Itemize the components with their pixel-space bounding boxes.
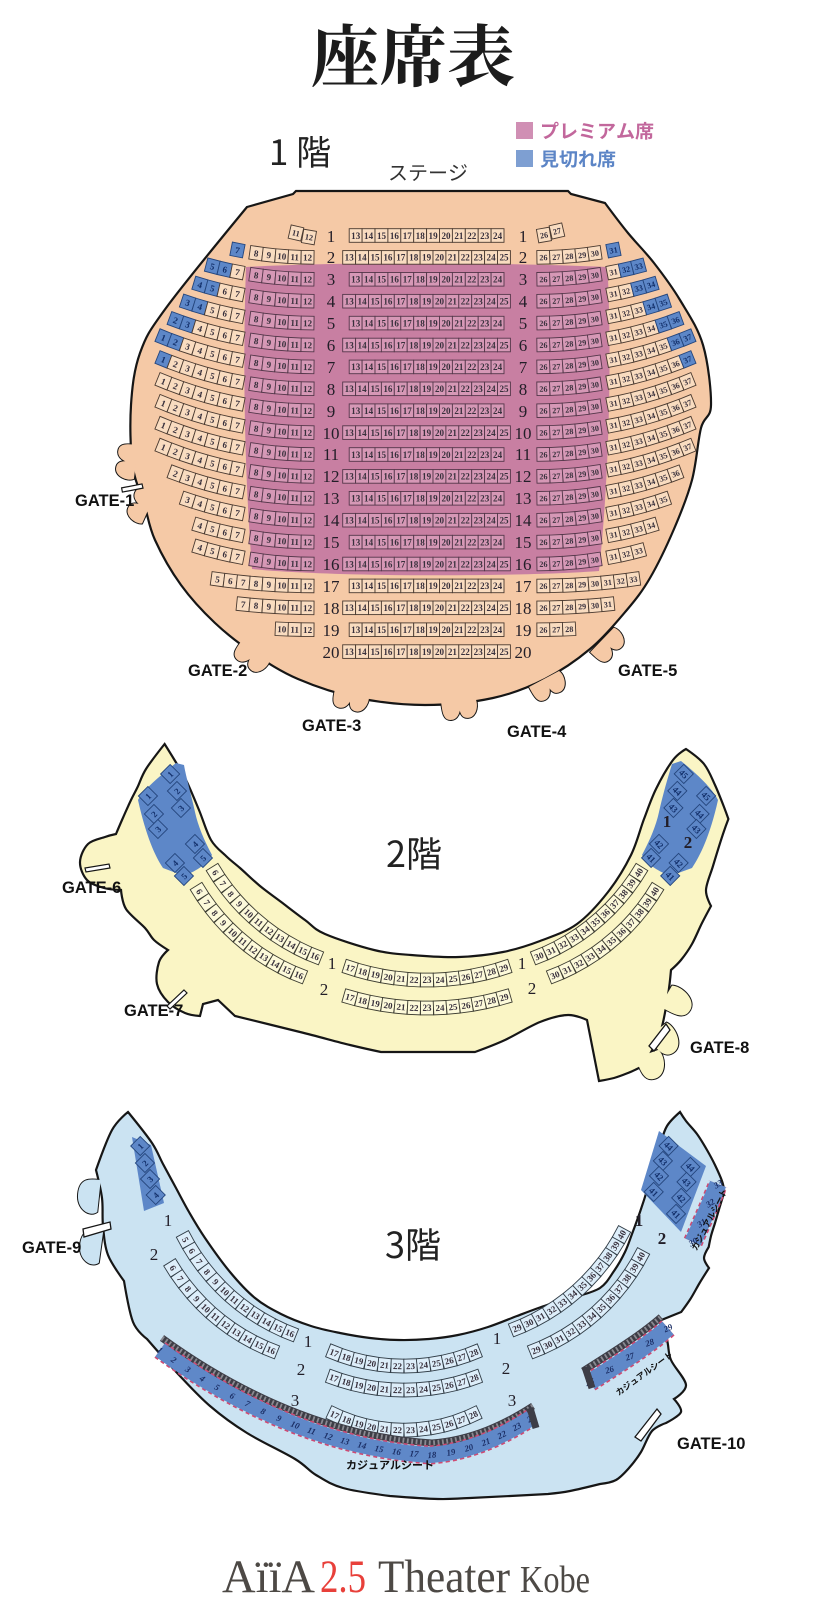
svg-text:3: 3 <box>519 270 528 289</box>
svg-text:18: 18 <box>409 516 419 526</box>
svg-text:11: 11 <box>290 581 299 591</box>
svg-text:21: 21 <box>448 340 458 350</box>
svg-text:20: 20 <box>435 340 445 350</box>
svg-text:28: 28 <box>565 252 574 262</box>
svg-text:16: 16 <box>383 647 393 657</box>
svg-text:19: 19 <box>429 275 439 285</box>
svg-text:31: 31 <box>609 399 619 409</box>
svg-text:17: 17 <box>403 362 413 372</box>
svg-text:17: 17 <box>403 406 413 416</box>
svg-text:17: 17 <box>396 340 406 350</box>
svg-text:18: 18 <box>409 384 419 394</box>
svg-text:33: 33 <box>629 575 638 585</box>
svg-text:11: 11 <box>290 318 300 328</box>
svg-text:13: 13 <box>345 297 355 307</box>
svg-text:19: 19 <box>429 450 439 460</box>
svg-text:13: 13 <box>351 625 361 635</box>
svg-text:3: 3 <box>508 1391 517 1410</box>
svg-text:16: 16 <box>383 472 393 482</box>
svg-text:17: 17 <box>403 231 413 241</box>
svg-text:31: 31 <box>609 267 619 277</box>
svg-text:13: 13 <box>345 253 355 263</box>
svg-text:21: 21 <box>448 472 458 482</box>
svg-text:13: 13 <box>515 489 532 508</box>
svg-text:11: 11 <box>290 340 300 350</box>
svg-text:1: 1 <box>518 954 527 973</box>
svg-text:28: 28 <box>565 296 574 306</box>
svg-text:11: 11 <box>290 515 300 525</box>
svg-text:26: 26 <box>539 341 547 350</box>
svg-text:16: 16 <box>390 581 400 591</box>
svg-text:16: 16 <box>390 494 400 504</box>
svg-text:23: 23 <box>480 362 490 372</box>
svg-text:26: 26 <box>539 407 547 416</box>
svg-text:12: 12 <box>515 467 532 486</box>
svg-text:4: 4 <box>327 292 336 311</box>
svg-text:24: 24 <box>493 231 503 241</box>
svg-text:15: 15 <box>370 428 380 438</box>
svg-text:15: 15 <box>377 581 387 591</box>
svg-text:9: 9 <box>327 402 336 421</box>
svg-text:15: 15 <box>323 533 340 552</box>
svg-text:23: 23 <box>480 318 490 328</box>
svg-text:2.5: 2.5 <box>320 1551 366 1599</box>
svg-text:29: 29 <box>578 404 587 414</box>
svg-text:22: 22 <box>393 1385 403 1395</box>
svg-text:GATE-10: GATE-10 <box>677 1435 745 1453</box>
svg-text:11: 11 <box>290 405 300 415</box>
svg-text:20: 20 <box>441 494 451 504</box>
svg-text:29: 29 <box>578 469 587 479</box>
svg-text:27: 27 <box>552 318 561 327</box>
svg-text:28: 28 <box>565 449 574 459</box>
svg-text:2: 2 <box>297 1360 306 1379</box>
svg-text:31: 31 <box>603 578 612 588</box>
svg-text:23: 23 <box>480 450 490 460</box>
svg-text:21: 21 <box>396 973 406 984</box>
svg-text:22: 22 <box>467 581 477 591</box>
svg-text:12: 12 <box>303 318 313 328</box>
svg-text:26: 26 <box>539 472 547 481</box>
svg-text:22: 22 <box>461 559 471 569</box>
svg-text:18: 18 <box>409 297 419 307</box>
svg-text:18: 18 <box>409 559 419 569</box>
svg-text:18: 18 <box>416 362 426 372</box>
svg-text:26: 26 <box>539 275 547 284</box>
svg-text:22: 22 <box>461 516 471 526</box>
svg-text:15: 15 <box>377 450 387 460</box>
svg-text:27: 27 <box>552 297 561 306</box>
svg-text:31: 31 <box>609 486 619 496</box>
svg-text:18: 18 <box>416 450 426 460</box>
svg-text:17: 17 <box>323 577 341 596</box>
svg-text:24: 24 <box>419 1384 429 1395</box>
svg-text:22: 22 <box>461 472 471 482</box>
svg-text:6: 6 <box>327 336 336 355</box>
svg-text:GATE-3: GATE-3 <box>302 717 361 735</box>
svg-text:20: 20 <box>441 537 451 547</box>
svg-text:14: 14 <box>364 494 374 504</box>
svg-text:19: 19 <box>515 621 532 640</box>
svg-text:24: 24 <box>435 1003 445 1013</box>
svg-text:21: 21 <box>379 1360 389 1371</box>
svg-text:19: 19 <box>422 253 432 263</box>
svg-text:10: 10 <box>277 404 287 415</box>
svg-text:18: 18 <box>323 599 340 618</box>
svg-text:11: 11 <box>290 471 300 481</box>
svg-text:29: 29 <box>578 360 587 370</box>
svg-text:22: 22 <box>461 384 471 394</box>
svg-text:11: 11 <box>290 559 300 569</box>
svg-text:2: 2 <box>502 1359 511 1378</box>
svg-text:10: 10 <box>277 492 287 503</box>
svg-text:25: 25 <box>499 559 509 569</box>
svg-text:24: 24 <box>487 253 497 263</box>
svg-text:25: 25 <box>499 253 509 263</box>
svg-text:30: 30 <box>590 314 599 324</box>
svg-text:10: 10 <box>277 624 287 634</box>
svg-text:27: 27 <box>552 384 561 393</box>
svg-text:24: 24 <box>493 494 503 504</box>
svg-text:12: 12 <box>303 340 313 350</box>
svg-text:12: 12 <box>303 493 313 503</box>
svg-text:14: 14 <box>358 647 368 657</box>
svg-text:13: 13 <box>345 603 355 613</box>
svg-text:24: 24 <box>493 362 503 372</box>
svg-text:27: 27 <box>552 253 561 262</box>
svg-text:19: 19 <box>429 625 439 635</box>
svg-text:11: 11 <box>323 445 339 464</box>
svg-text:28: 28 <box>565 339 574 349</box>
svg-text:Kobe: Kobe <box>520 1559 590 1599</box>
svg-text:20: 20 <box>441 318 451 328</box>
svg-text:17: 17 <box>403 450 413 460</box>
svg-text:10: 10 <box>277 251 287 262</box>
svg-text:20: 20 <box>435 472 445 482</box>
svg-text:23: 23 <box>474 559 484 569</box>
svg-text:10: 10 <box>277 339 287 350</box>
svg-text:16: 16 <box>383 559 393 569</box>
svg-text:12: 12 <box>303 274 313 284</box>
svg-text:GATE-9: GATE-9 <box>22 1239 81 1257</box>
svg-text:29: 29 <box>578 535 587 545</box>
svg-text:10: 10 <box>277 295 287 306</box>
svg-text:24: 24 <box>487 647 497 657</box>
svg-text:27: 27 <box>552 581 560 590</box>
svg-text:28: 28 <box>565 361 574 371</box>
svg-text:10: 10 <box>277 361 287 372</box>
svg-text:22: 22 <box>461 428 471 438</box>
svg-text:24: 24 <box>493 450 503 460</box>
svg-text:13: 13 <box>351 231 361 241</box>
svg-text:27: 27 <box>552 625 560 634</box>
svg-text:21: 21 <box>454 362 464 372</box>
svg-text:Theater: Theater <box>378 1551 510 1599</box>
svg-text:23: 23 <box>474 647 484 657</box>
svg-text:11: 11 <box>290 274 300 284</box>
svg-text:17: 17 <box>403 494 413 504</box>
svg-text:27: 27 <box>552 472 561 481</box>
svg-text:19: 19 <box>422 384 432 394</box>
svg-text:11: 11 <box>290 625 299 635</box>
svg-text:9: 9 <box>519 402 528 421</box>
svg-text:24: 24 <box>493 406 503 416</box>
svg-text:GATE-6: GATE-6 <box>62 879 121 897</box>
svg-text:24: 24 <box>493 318 503 328</box>
svg-text:8: 8 <box>519 380 528 399</box>
svg-text:26: 26 <box>539 450 547 459</box>
svg-text:24: 24 <box>487 559 497 569</box>
svg-text:21: 21 <box>448 428 458 438</box>
svg-text:15: 15 <box>377 625 387 635</box>
svg-text:10: 10 <box>277 382 287 393</box>
svg-text:30: 30 <box>591 579 600 589</box>
svg-text:29: 29 <box>578 491 587 501</box>
svg-text:23: 23 <box>480 275 490 285</box>
svg-text:26: 26 <box>539 319 547 328</box>
svg-text:22: 22 <box>461 340 471 350</box>
svg-text:15: 15 <box>377 537 387 547</box>
svg-text:22: 22 <box>461 647 471 657</box>
svg-text:18: 18 <box>515 599 532 618</box>
svg-text:23: 23 <box>474 472 484 482</box>
svg-text:30: 30 <box>590 511 599 521</box>
svg-text:18: 18 <box>416 625 426 635</box>
svg-text:23: 23 <box>406 1425 416 1435</box>
svg-text:30: 30 <box>590 292 599 302</box>
svg-text:10: 10 <box>277 558 287 569</box>
svg-text:14: 14 <box>364 450 374 460</box>
svg-text:21: 21 <box>454 318 464 328</box>
svg-text:16: 16 <box>515 555 532 574</box>
svg-text:16: 16 <box>390 625 400 635</box>
svg-text:19: 19 <box>429 537 439 547</box>
svg-text:17: 17 <box>403 537 413 547</box>
svg-text:24: 24 <box>487 384 497 394</box>
svg-text:23: 23 <box>474 428 484 438</box>
svg-text:27: 27 <box>552 537 561 546</box>
svg-text:17: 17 <box>396 297 406 307</box>
svg-text:18: 18 <box>416 494 426 504</box>
svg-text:12: 12 <box>303 406 313 416</box>
svg-text:1: 1 <box>328 954 337 973</box>
svg-text:31: 31 <box>609 355 619 365</box>
svg-text:18: 18 <box>416 537 426 547</box>
svg-text:20: 20 <box>441 362 451 372</box>
svg-text:21: 21 <box>448 297 458 307</box>
svg-text:14: 14 <box>358 384 368 394</box>
svg-text:1: 1 <box>164 1211 173 1230</box>
svg-text:1: 1 <box>327 227 336 246</box>
svg-text:26: 26 <box>539 538 547 547</box>
svg-text:14: 14 <box>364 275 374 285</box>
svg-text:24: 24 <box>493 581 503 591</box>
svg-text:16: 16 <box>390 537 400 547</box>
svg-text:23: 23 <box>423 975 433 985</box>
svg-text:15: 15 <box>370 340 380 350</box>
svg-text:31: 31 <box>609 552 619 562</box>
svg-text:19: 19 <box>429 581 439 591</box>
svg-text:22: 22 <box>467 318 477 328</box>
svg-text:26: 26 <box>539 604 547 613</box>
svg-text:30: 30 <box>590 271 599 281</box>
svg-text:23: 23 <box>480 231 490 241</box>
svg-text:18: 18 <box>416 318 426 328</box>
svg-text:15: 15 <box>370 297 380 307</box>
svg-text:30: 30 <box>590 533 599 543</box>
svg-text:2: 2 <box>327 248 336 267</box>
svg-text:20: 20 <box>435 384 445 394</box>
svg-text:12: 12 <box>303 625 313 635</box>
svg-text:21: 21 <box>448 253 458 263</box>
svg-text:18: 18 <box>409 472 419 482</box>
svg-text:19: 19 <box>422 340 432 350</box>
svg-text:16: 16 <box>383 253 393 263</box>
svg-text:26: 26 <box>539 385 547 394</box>
svg-text:17: 17 <box>396 647 406 657</box>
svg-text:1: 1 <box>663 812 672 831</box>
svg-text:19: 19 <box>429 318 439 328</box>
svg-text:11: 11 <box>290 361 300 371</box>
svg-text:19: 19 <box>422 647 432 657</box>
svg-text:28: 28 <box>565 383 574 393</box>
svg-text:22: 22 <box>467 275 477 285</box>
svg-text:18: 18 <box>409 603 419 613</box>
svg-text:29: 29 <box>578 272 587 282</box>
svg-text:GATE-7: GATE-7 <box>124 1002 183 1020</box>
svg-text:29: 29 <box>578 294 587 304</box>
svg-text:21: 21 <box>448 516 458 526</box>
svg-text:21: 21 <box>448 384 458 394</box>
svg-text:19: 19 <box>429 406 439 416</box>
svg-text:16: 16 <box>390 231 400 241</box>
svg-text:16: 16 <box>390 406 400 416</box>
svg-text:22: 22 <box>409 1003 419 1013</box>
svg-text:28: 28 <box>565 427 574 437</box>
svg-text:19: 19 <box>429 362 439 372</box>
svg-text:1: 1 <box>493 1329 502 1348</box>
svg-text:16: 16 <box>390 450 400 460</box>
svg-text:10: 10 <box>277 426 287 437</box>
svg-text:15: 15 <box>370 559 380 569</box>
svg-text:18: 18 <box>409 428 419 438</box>
svg-text:18: 18 <box>409 340 419 350</box>
svg-text:26: 26 <box>539 626 547 635</box>
svg-text:11: 11 <box>515 445 531 464</box>
svg-text:16: 16 <box>383 516 393 526</box>
svg-text:21: 21 <box>448 559 458 569</box>
svg-text:15: 15 <box>377 494 387 504</box>
svg-text:11: 11 <box>290 427 300 437</box>
svg-text:14: 14 <box>358 516 368 526</box>
svg-text:10: 10 <box>323 424 340 443</box>
svg-text:31: 31 <box>609 333 619 343</box>
svg-text:19: 19 <box>323 621 340 640</box>
svg-text:24: 24 <box>418 1423 429 1434</box>
svg-text:31: 31 <box>609 377 619 387</box>
svg-text:22: 22 <box>467 362 477 372</box>
svg-text:25: 25 <box>499 428 509 438</box>
svg-text:16: 16 <box>383 603 393 613</box>
svg-text:14: 14 <box>358 428 368 438</box>
svg-text:22: 22 <box>467 494 477 504</box>
svg-text:15: 15 <box>377 406 387 416</box>
svg-text:19: 19 <box>422 428 432 438</box>
svg-text:16: 16 <box>383 384 393 394</box>
svg-text:22: 22 <box>393 1361 403 1371</box>
svg-text:27: 27 <box>552 494 561 503</box>
svg-text:12: 12 <box>303 472 313 482</box>
svg-text:27: 27 <box>552 275 561 284</box>
svg-text:13: 13 <box>345 384 355 394</box>
svg-text:30: 30 <box>590 358 599 368</box>
svg-text:29: 29 <box>578 316 587 326</box>
svg-text:29: 29 <box>578 448 587 458</box>
svg-text:2: 2 <box>684 833 693 852</box>
svg-text:20: 20 <box>435 559 445 569</box>
svg-text:12: 12 <box>303 296 313 306</box>
svg-text:29: 29 <box>578 602 587 612</box>
svg-text:10: 10 <box>277 536 287 547</box>
svg-text:16: 16 <box>390 362 400 372</box>
svg-text:28: 28 <box>565 405 574 415</box>
svg-text:14: 14 <box>364 625 374 635</box>
svg-text:18: 18 <box>427 1449 437 1460</box>
svg-text:18: 18 <box>416 581 426 591</box>
svg-text:7: 7 <box>327 358 336 377</box>
svg-text:15: 15 <box>377 231 387 241</box>
svg-text:19: 19 <box>422 472 432 482</box>
svg-text:23: 23 <box>474 603 484 613</box>
svg-text:10: 10 <box>277 514 287 525</box>
svg-text:23: 23 <box>474 384 484 394</box>
svg-text:2: 2 <box>528 979 537 998</box>
svg-text:14: 14 <box>364 231 374 241</box>
svg-text:21: 21 <box>454 275 464 285</box>
svg-text:3: 3 <box>327 270 336 289</box>
svg-text:14: 14 <box>358 472 368 482</box>
svg-text:19: 19 <box>422 297 432 307</box>
svg-text:20: 20 <box>441 581 451 591</box>
svg-text:19: 19 <box>422 559 432 569</box>
svg-text:20: 20 <box>435 253 445 263</box>
svg-text:15: 15 <box>370 603 380 613</box>
svg-text:1: 1 <box>304 1332 313 1351</box>
svg-text:12: 12 <box>303 559 313 569</box>
svg-text:28: 28 <box>565 317 574 327</box>
svg-text:15: 15 <box>370 516 380 526</box>
svg-text:19: 19 <box>422 603 432 613</box>
svg-text:17: 17 <box>396 472 406 482</box>
svg-text:20: 20 <box>435 297 445 307</box>
svg-text:31: 31 <box>609 464 619 474</box>
svg-text:22: 22 <box>393 1425 403 1435</box>
svg-text:23: 23 <box>474 516 484 526</box>
svg-text:13: 13 <box>351 450 361 460</box>
svg-text:25: 25 <box>499 340 509 350</box>
svg-text:10: 10 <box>277 602 287 612</box>
svg-text:25: 25 <box>499 472 509 482</box>
svg-text:31: 31 <box>609 420 619 430</box>
svg-text:2: 2 <box>320 980 329 999</box>
svg-text:18: 18 <box>409 647 419 657</box>
svg-text:23: 23 <box>474 253 484 263</box>
svg-text:31: 31 <box>603 600 612 610</box>
svg-text:29: 29 <box>578 513 587 523</box>
svg-text:27: 27 <box>552 340 561 349</box>
svg-text:10: 10 <box>277 448 287 459</box>
svg-text:24: 24 <box>487 516 497 526</box>
